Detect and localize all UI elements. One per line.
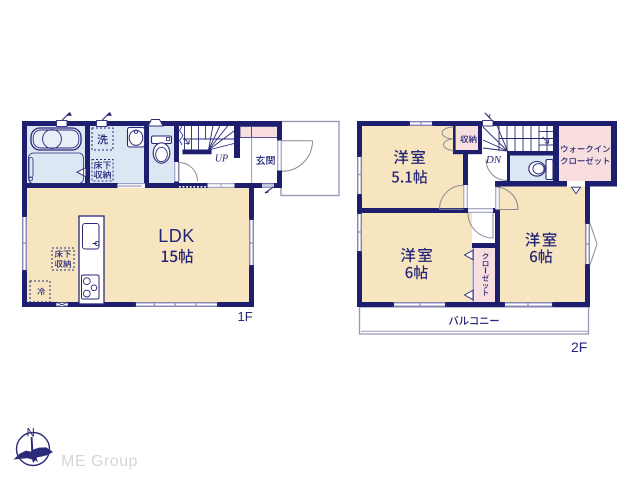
svg-text:DN: DN bbox=[485, 154, 502, 166]
svg-text:N: N bbox=[26, 428, 34, 440]
svg-text:UP: UP bbox=[215, 154, 228, 165]
svg-text:LDK: LDK bbox=[158, 226, 195, 246]
svg-text:2F: 2F bbox=[571, 339, 587, 355]
svg-text:ME Group: ME Group bbox=[61, 453, 138, 470]
svg-text:1F: 1F bbox=[238, 309, 253, 324]
